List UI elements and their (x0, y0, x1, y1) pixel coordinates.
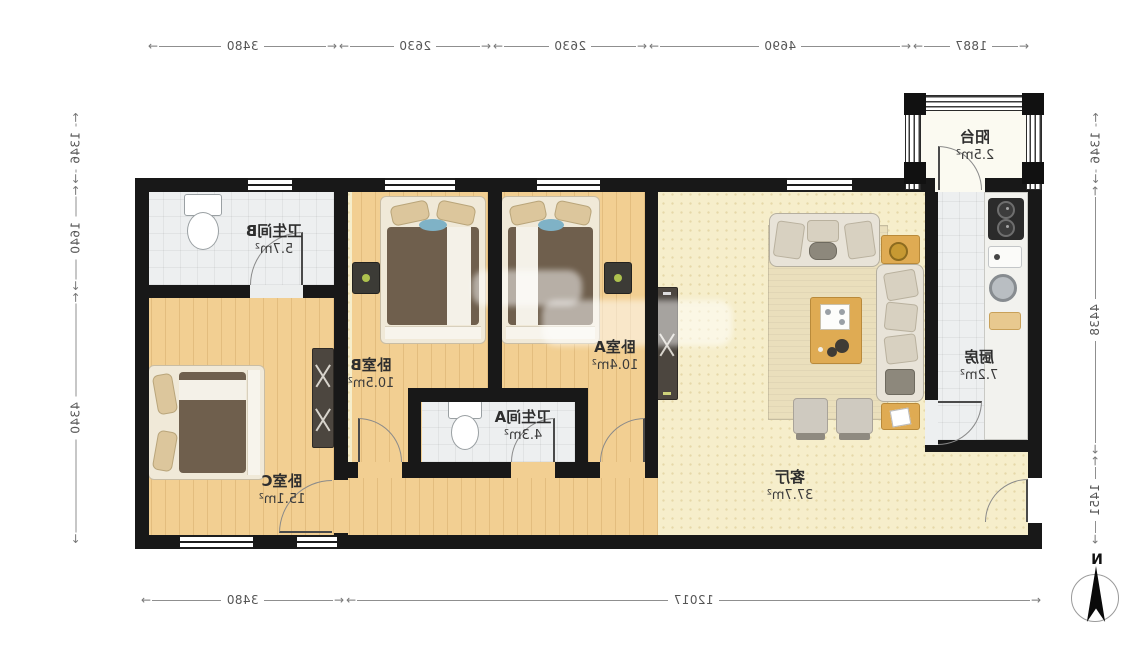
room-area: 37.7m² (730, 488, 850, 505)
opening-bathb-door (250, 285, 303, 298)
label-living: 客厅 37.7m² (730, 468, 850, 504)
dim-left-1346: ←1346→ (68, 112, 84, 185)
label-balcony: 阳台 2.5m² (920, 128, 1030, 164)
opening-bedb-door (358, 462, 402, 478)
bed-decor (538, 219, 564, 231)
room-name: 阳台 (920, 128, 1030, 148)
room-area: 7.2m² (924, 368, 1034, 385)
room-name: 卧室A (555, 338, 675, 358)
balcony-post (904, 93, 926, 115)
dim-left-1640: ←1640→ (68, 185, 84, 292)
window-beda (537, 178, 600, 192)
window-bedc-1 (297, 535, 337, 549)
opening-kitchen-door (925, 400, 938, 445)
room-area: 10.5m² (311, 376, 431, 393)
pillow (152, 430, 179, 473)
dim-top-4690: ←4690→ (648, 38, 912, 54)
window-bedb (385, 178, 455, 192)
wall-bedb-beda (488, 178, 502, 402)
window-bedc-2 (180, 535, 253, 549)
dim-right-4438: ←4438→ (1087, 185, 1103, 455)
pillow (152, 373, 179, 416)
dim-bottom-3480: ←3480→ (140, 592, 345, 608)
sofa-long (876, 264, 924, 402)
bedroom-b-nightstand (352, 262, 380, 294)
outer-wall-bottom (135, 535, 1042, 549)
room-area: 5.7m² (214, 242, 334, 259)
sofa-loveseat (769, 213, 880, 267)
window-bathb (248, 178, 292, 192)
wall-beda-living (645, 178, 658, 478)
cutting-board (989, 312, 1021, 330)
balcony-post (904, 162, 926, 184)
bed-foot-fold (247, 370, 260, 475)
balcony-post (1022, 93, 1044, 115)
bed-foot-fold (385, 326, 481, 339)
compass-n-label: N (1077, 552, 1117, 568)
bed-runner (447, 227, 471, 325)
label-kitchen: 厨房 7.2m² (924, 348, 1034, 384)
kitchen-sink (989, 274, 1017, 302)
room-area: 10.4m² (555, 358, 675, 375)
label-bathroom-a: 卫生间A 4.3m² (463, 408, 583, 444)
room-name: 卫生间A (463, 408, 583, 428)
bedroom-b-bed (380, 196, 486, 344)
kitchen-appliance (988, 246, 1022, 268)
bedroom-c-bed (148, 365, 265, 480)
room-area: 2.5m² (920, 148, 1030, 165)
window-living (787, 178, 852, 192)
stove (988, 198, 1024, 240)
label-bathroom-b: 卫生间B 5.7m² (214, 222, 334, 258)
opening-beda-door (600, 462, 645, 478)
dim-bottom-12017: ←12017→ (345, 592, 1042, 608)
label-bedroom-b: 卧室B 10.5m² (311, 356, 431, 392)
room-name: 卧室B (311, 356, 431, 376)
label-bedroom-a: 卧室A 10.4m² (555, 338, 675, 374)
coffee-table (810, 297, 862, 364)
dim-right-1451: ←1451→ (1087, 455, 1103, 545)
opening-batha-door (511, 462, 555, 478)
outer-wall-far-side (135, 178, 149, 549)
dim-top-1887: ←1887→ (912, 38, 1030, 54)
room-name: 厨房 (924, 348, 1034, 368)
room-name: 客厅 (730, 468, 850, 488)
dim-right-1346: ←1346→ (1088, 112, 1104, 185)
dim-top-3480: ←3480→ (147, 38, 338, 54)
opening-entrance (1028, 478, 1042, 523)
mirrored-canvas: 阳台 2.5m² 厨房 7.2m² 客厅 37.7m² 卧室A 10.4m² 卫… (0, 0, 1142, 666)
dim-left-4340: ←4340→ (68, 292, 84, 545)
armchair (836, 398, 873, 434)
label-bedroom-c: 卧室C 15.1m² (222, 472, 342, 508)
side-table-book (881, 403, 920, 430)
floor-plan-image: 阳台 2.5m² 厨房 7.2m² 客厅 37.7m² 卧室A 10.4m² 卫… (0, 0, 1142, 666)
room-area: 4.3m² (463, 428, 583, 445)
dim-top-2630-b: ←2630→ (338, 38, 492, 54)
dim-top-2630-a: ←2630→ (492, 38, 648, 54)
balcony-post (1022, 162, 1044, 184)
wall-bathb-bedc (149, 285, 334, 298)
wall-batha-top (408, 388, 588, 402)
side-table-lamp (881, 235, 920, 264)
room-area: 15.1m² (222, 492, 342, 509)
room-name: 卧室C (222, 472, 342, 492)
bed-runner (179, 380, 246, 400)
bed-decor (419, 219, 447, 231)
armchair (793, 398, 828, 434)
bedroom-a-nightstand (604, 262, 632, 294)
room-name: 卫生间B (214, 222, 334, 242)
